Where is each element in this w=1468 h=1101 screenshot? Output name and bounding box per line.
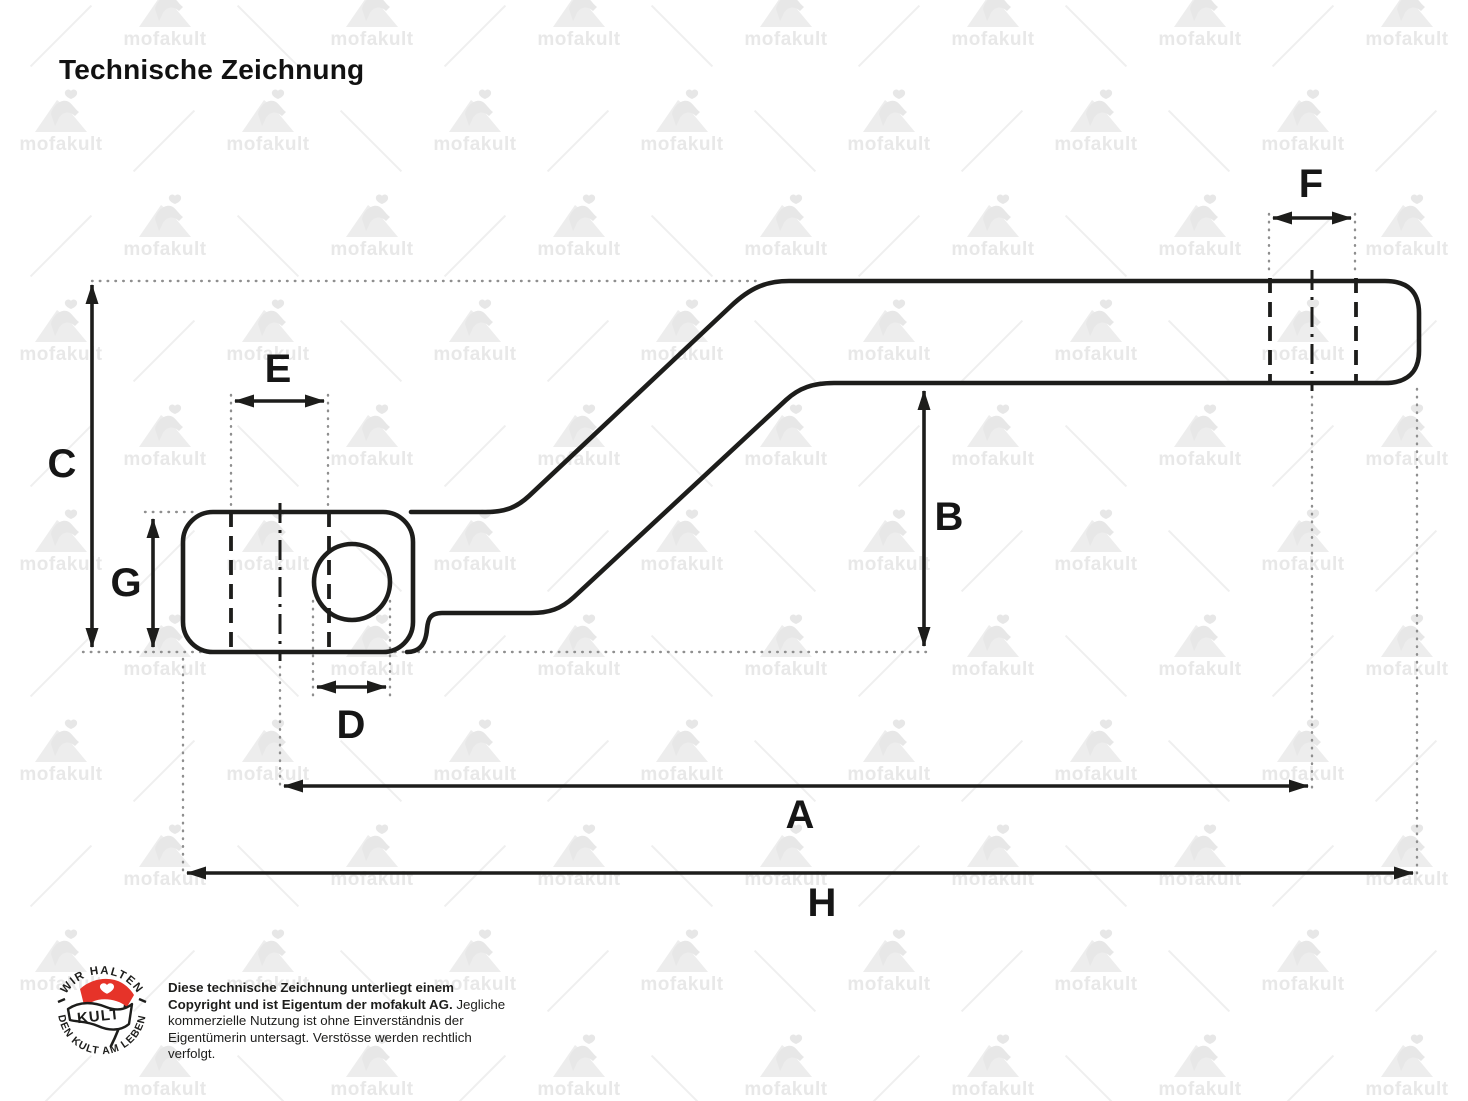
dimension-lines	[92, 218, 1413, 873]
shaft-hole	[314, 544, 390, 620]
dimension-label-h: H	[808, 881, 837, 925]
dimension-label-b: B	[935, 495, 964, 539]
kult-badge-logo: WIR HALTEN DEN KULT AM LEBEN KULT	[50, 958, 154, 1070]
copyright-bold-text: Diese technische Zeichnung unterliegt ei…	[168, 980, 454, 1012]
copyright-note: Diese technische Zeichnung unterliegt ei…	[168, 980, 516, 1063]
dimension-label-d: D	[337, 703, 366, 747]
dimension-labels: A B C D E F G H	[48, 162, 1324, 925]
dimension-label-g: G	[110, 561, 141, 605]
badge-dashes	[58, 999, 146, 1002]
dimension-label-a: A	[786, 793, 815, 837]
page-title: Technische Zeichnung	[59, 54, 364, 86]
dimension-label-f: F	[1299, 162, 1323, 206]
technical-drawing-page: mofakultmofakultmofakultmofakultmofakult…	[0, 0, 1468, 1101]
dimension-label-c: C	[48, 442, 77, 486]
center-lines	[280, 270, 1312, 661]
boss-outline	[183, 512, 413, 652]
part-outline	[183, 281, 1419, 652]
hidden-lines	[231, 278, 1356, 652]
lever-technical-drawing: A B C D E F G H	[0, 0, 1468, 1101]
dimension-label-e: E	[265, 347, 292, 391]
extension-lines	[83, 214, 1417, 877]
arm-outline	[407, 281, 1419, 652]
